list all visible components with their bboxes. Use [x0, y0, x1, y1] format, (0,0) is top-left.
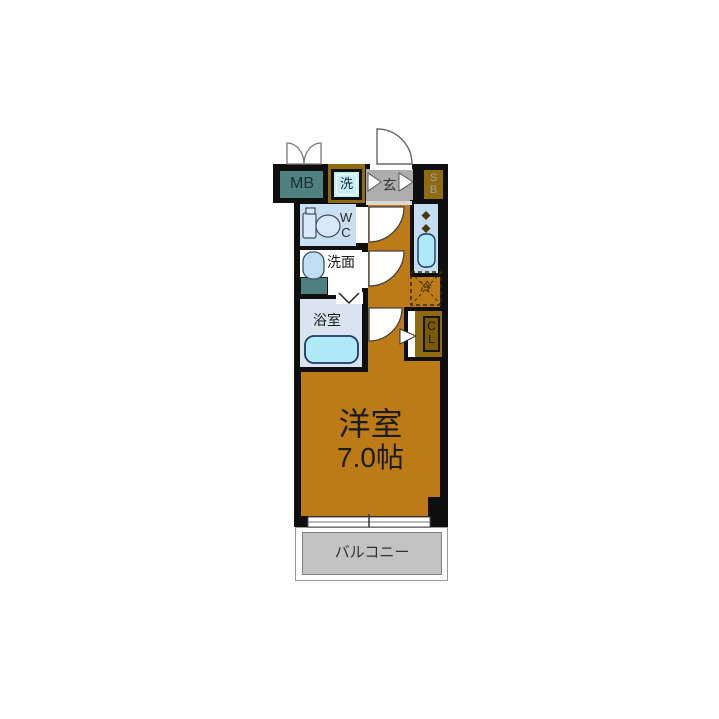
- entrance-threshold: [370, 164, 412, 170]
- mb-door-left-icon: [287, 143, 304, 164]
- wall-left-lower: [294, 372, 301, 516]
- mb-door-right-icon: [304, 143, 321, 164]
- closet-label: CL: [425, 320, 438, 347]
- main-room-size: 7.0帖: [301, 443, 440, 474]
- washer-label: 洗: [334, 177, 359, 191]
- bathroom-room: [300, 299, 362, 367]
- washroom-label: 洗面: [327, 255, 355, 270]
- balcony-label: バルコニー: [302, 545, 442, 562]
- bathroom-label: 浴室: [313, 313, 341, 328]
- entrance-door-icon: [377, 129, 412, 164]
- washroom-door-gap: [361, 252, 368, 288]
- meter-box-label: MB: [283, 175, 321, 193]
- floor-plan: MB 洗 玄 SB WC 洗面 浴室 冷 CL 洋室 7.0帖 バルコニー: [0, 0, 719, 719]
- wall-bottom-left: [294, 516, 363, 527]
- shoe-box-label: SB: [427, 172, 440, 197]
- kitchen-floor: [414, 204, 438, 273]
- fridge-label: 冷: [413, 281, 439, 294]
- washroom-counter: [300, 277, 328, 295]
- entrance-label: 玄: [366, 178, 413, 193]
- closet-door: [408, 311, 415, 357]
- toilet-label: WC: [339, 211, 353, 240]
- wall-pillar: [428, 497, 448, 527]
- main-room-label: 洋室: [301, 407, 440, 442]
- toilet-door-gap: [356, 207, 368, 243]
